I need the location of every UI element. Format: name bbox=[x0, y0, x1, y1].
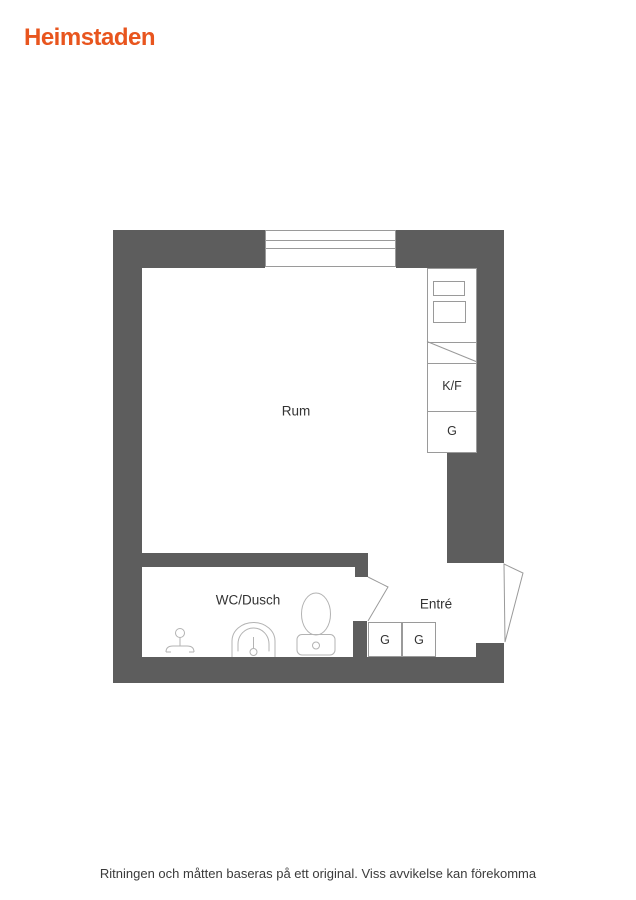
floorplan-page: Heimstaden G G Rum WC/Dusch Entré K/F G bbox=[0, 0, 636, 900]
wall-wc-jamb-top bbox=[355, 567, 368, 577]
wall-room-divider bbox=[447, 453, 476, 563]
kitchen-divider-line bbox=[428, 363, 476, 364]
door-swing-wc bbox=[368, 577, 388, 621]
room-label-entre: Entré bbox=[420, 597, 452, 612]
window-pane-line bbox=[266, 240, 395, 241]
kitchen-divider-line bbox=[428, 342, 476, 343]
shower-icon bbox=[166, 629, 194, 653]
room-label-rum: Rum bbox=[282, 404, 311, 419]
toilet-icon bbox=[297, 593, 335, 655]
wall-wc-top bbox=[142, 553, 368, 567]
window-pane-line bbox=[266, 248, 395, 249]
brand-logo: Heimstaden bbox=[24, 24, 155, 52]
kitchen-divider-line bbox=[428, 411, 476, 412]
closet-box-1: G bbox=[368, 622, 402, 657]
closet-box-2: G bbox=[402, 622, 436, 657]
fixtures-overlay bbox=[0, 0, 636, 900]
window-symbol bbox=[265, 230, 396, 267]
sink-icon bbox=[232, 623, 275, 657]
wall-bottom bbox=[113, 657, 504, 683]
kitchen-stove-rect bbox=[433, 301, 466, 323]
disclaimer-text: Ritningen och måtten baseras på ett orig… bbox=[0, 866, 636, 881]
wall-wc-jamb-bottom bbox=[353, 621, 367, 657]
room-label-wc: WC/Dusch bbox=[216, 593, 281, 608]
door-swing-entry bbox=[504, 564, 523, 642]
wall-left bbox=[113, 230, 142, 683]
kitchen-sink-rect bbox=[433, 281, 465, 296]
wall-right-upper bbox=[476, 230, 504, 563]
kitchen-g-label: G bbox=[447, 424, 457, 438]
kitchen-kf-label: K/F bbox=[442, 379, 461, 393]
